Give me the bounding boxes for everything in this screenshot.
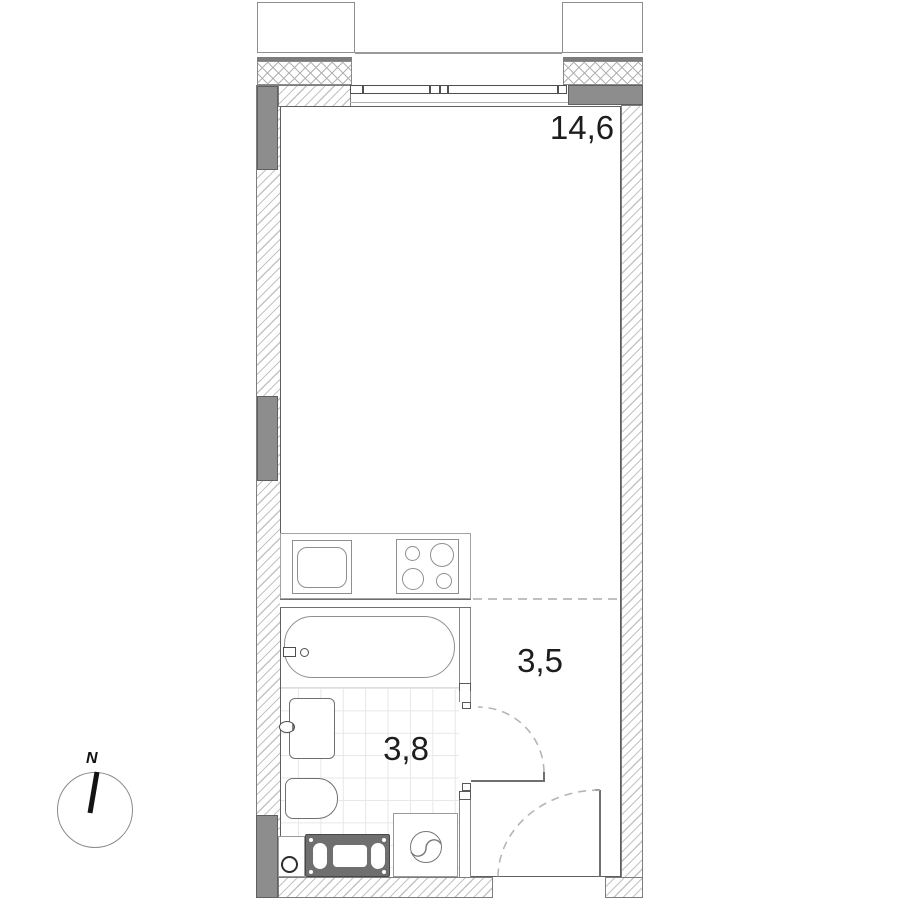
compass	[57, 772, 133, 848]
radiator-bolt	[382, 838, 386, 842]
room-label-living: 14,6	[540, 110, 624, 146]
bathroom-door-leaf	[471, 780, 545, 782]
bathroom-door-jamb	[462, 783, 471, 791]
window-mullion	[447, 86, 449, 93]
toilet	[285, 778, 338, 819]
stove-burner	[405, 546, 420, 561]
wall-top-left-piece	[278, 85, 351, 107]
bathroom-wall-right-upper2	[459, 691, 471, 702]
insulation-right	[563, 61, 643, 85]
radiator	[305, 834, 390, 877]
bathroom-door-leaf-tip	[543, 772, 545, 781]
radiator-slot	[333, 845, 367, 867]
wall-right	[621, 105, 643, 878]
window-mullion	[429, 86, 431, 93]
window-sill-line	[350, 102, 568, 103]
insulation-left	[257, 61, 352, 85]
bathroom-door-jamb	[459, 791, 471, 800]
balcony-slab-right	[562, 2, 643, 53]
washing-machine-drum	[410, 831, 442, 863]
washbasin-faucet	[279, 721, 295, 733]
entry-door-leaf	[599, 790, 601, 877]
radiator-slot	[313, 843, 327, 869]
compass-north-label: N	[86, 750, 114, 768]
wall-left-pier-middle	[257, 396, 278, 481]
wall-left-pier-bottom	[256, 815, 278, 898]
bathroom-door-jamb	[462, 702, 471, 709]
stove-burner	[402, 568, 424, 590]
wall-top-right-pier	[568, 85, 643, 105]
washbasin	[289, 698, 335, 759]
bathroom-wall-right-lower	[459, 800, 471, 877]
wall-left-pier-top	[257, 86, 278, 170]
wall-left	[256, 85, 281, 898]
floor-drain	[281, 856, 298, 873]
window-mullion	[362, 86, 364, 93]
bathtub-faucet	[283, 647, 296, 657]
window-mullion	[439, 86, 441, 93]
radiator-bolt	[309, 870, 313, 874]
bathroom-wall-right-upper	[459, 608, 471, 684]
entry-door-leaf-tip	[595, 789, 600, 791]
radiator-bolt	[309, 838, 313, 842]
balcony-edge-line	[355, 52, 562, 54]
bathtub	[284, 616, 455, 678]
window	[350, 85, 567, 94]
wall-bottom-left	[278, 877, 493, 898]
stove-burner	[436, 573, 452, 589]
balcony-slab-left	[257, 2, 355, 53]
room-label-hallway: 3,5	[498, 643, 582, 679]
floor-plan: 14,6 3,5 3,8 N	[0, 0, 900, 900]
stove-burner	[430, 543, 454, 567]
bathroom-wall-top	[280, 599, 471, 608]
radiator-slot	[371, 843, 385, 869]
bathtub-drain	[300, 648, 309, 657]
room-label-bathroom: 3,8	[364, 731, 448, 767]
wall-bottom-right	[605, 877, 643, 898]
kitchen-sink-basin	[297, 547, 347, 588]
radiator-bolt	[382, 870, 386, 874]
window-mullion	[557, 86, 559, 93]
